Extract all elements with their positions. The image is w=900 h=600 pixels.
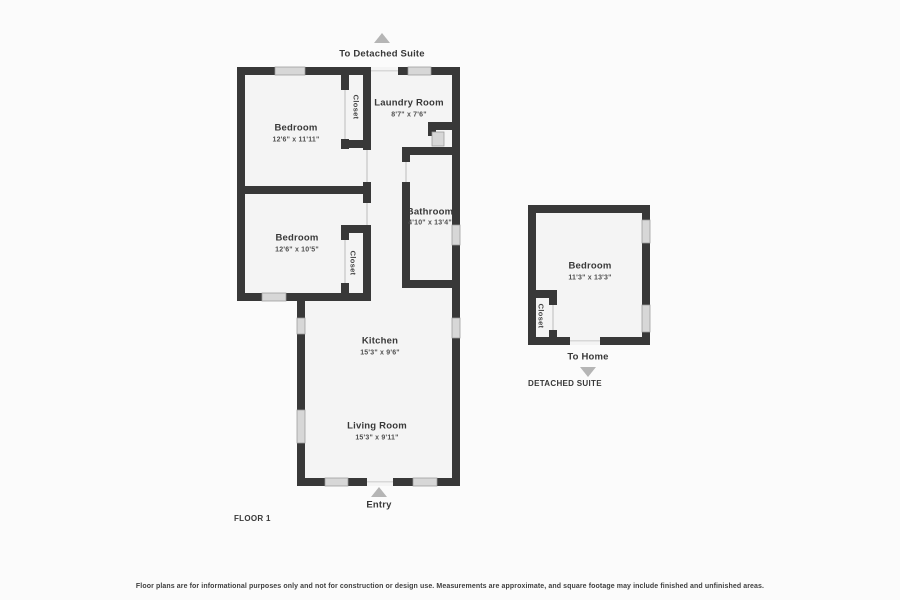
- bedroom-1-dims: 12'6" x 11'11": [272, 137, 319, 144]
- laundry-room-dims: 8'7" x 7'6": [391, 112, 427, 119]
- bathroom-dims: 4'10" x 13'4": [408, 220, 452, 227]
- bedroom-2-dims: 12'6" x 10'5": [275, 247, 319, 254]
- closet-2-label: Closet: [349, 251, 358, 276]
- closet-1-label: Closet: [352, 95, 361, 120]
- to-detached-suite-label: To Detached Suite: [339, 49, 425, 60]
- kitchen-name: Kitchen: [362, 336, 398, 347]
- entry-arrow-icon: [371, 487, 387, 497]
- bedroom-1-name: Bedroom: [274, 123, 317, 134]
- up-arrow-icon: [374, 33, 390, 43]
- bedroom-2-name: Bedroom: [275, 233, 318, 244]
- detached-bedroom-dims: 11'3" x 13'3": [568, 275, 611, 282]
- to-home-label: To Home: [567, 352, 608, 363]
- down-arrow-icon: [580, 367, 596, 377]
- floor-plan-drawing: [0, 0, 900, 600]
- disclaimer-text: Floor plans are for informational purpos…: [0, 583, 900, 590]
- detached-bedroom-name: Bedroom: [568, 261, 611, 272]
- floor-1-label: FLOOR 1: [234, 514, 271, 523]
- detached-suite-label: DETACHED SUITE: [528, 379, 602, 388]
- closet-3-label: Closet: [537, 304, 546, 329]
- entry-label: Entry: [366, 500, 391, 511]
- floor-plan-page: To Detached Suite Bedroom 12'6" x 11'11"…: [0, 0, 900, 600]
- laundry-room-name: Laundry Room: [374, 98, 443, 109]
- bathroom-name: Bathroom: [407, 207, 453, 218]
- living-room-name: Living Room: [347, 421, 407, 432]
- kitchen-dims: 15'3" x 9'6": [360, 350, 400, 357]
- living-room-dims: 15'3" x 9'11": [355, 435, 398, 442]
